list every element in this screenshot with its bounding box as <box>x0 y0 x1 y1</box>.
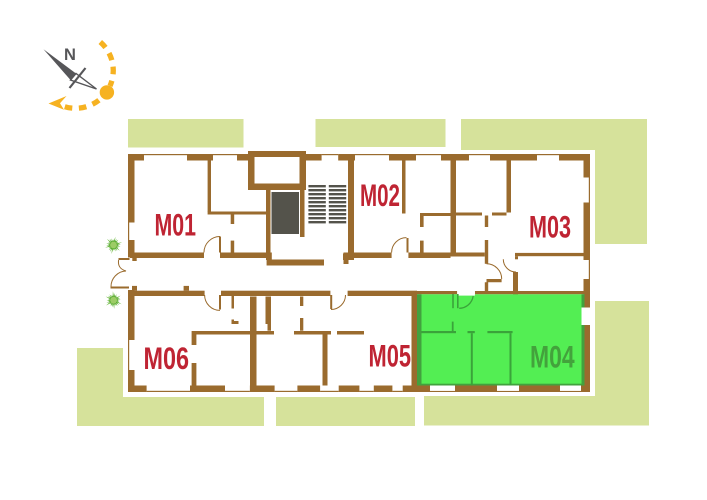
svg-text:M03: M03 <box>529 208 571 244</box>
svg-text:M05: M05 <box>369 337 412 373</box>
svg-text:M02: M02 <box>360 177 400 213</box>
svg-text:M04: M04 <box>530 339 575 375</box>
svg-text:M01: M01 <box>155 207 197 243</box>
svg-text:N: N <box>64 46 76 64</box>
svg-text:M06: M06 <box>144 340 190 376</box>
